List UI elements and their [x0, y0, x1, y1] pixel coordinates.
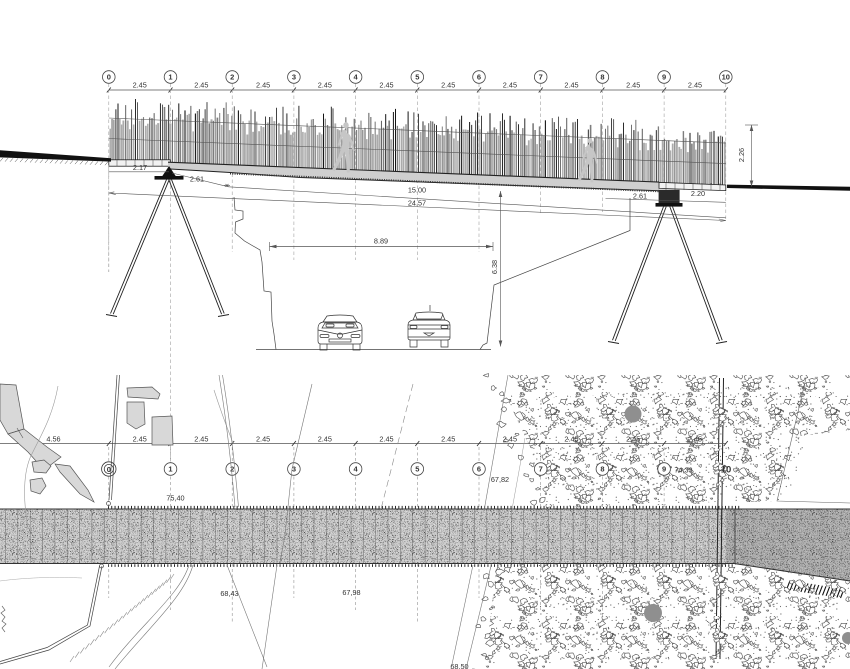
svg-text:4: 4 — [354, 73, 359, 82]
svg-text:5: 5 — [415, 73, 419, 82]
svg-text:2.45: 2.45 — [626, 435, 640, 444]
svg-text:9: 9 — [662, 465, 666, 474]
svg-text:75,40: 75,40 — [166, 494, 184, 503]
svg-text:15.00: 15.00 — [408, 186, 426, 195]
svg-text:6: 6 — [477, 465, 481, 474]
svg-text:8: 8 — [600, 465, 604, 474]
svg-text:2.45: 2.45 — [503, 81, 517, 90]
svg-text:6: 6 — [477, 73, 481, 82]
svg-text:2.45: 2.45 — [133, 81, 147, 90]
svg-text:2.45: 2.45 — [688, 81, 702, 90]
svg-text:68,43: 68,43 — [220, 589, 238, 598]
svg-text:6.38: 6.38 — [490, 260, 499, 274]
svg-text:2.45: 2.45 — [256, 435, 270, 444]
svg-text:1: 1 — [168, 465, 172, 474]
svg-text:2.45: 2.45 — [379, 81, 393, 90]
svg-text:7: 7 — [539, 73, 543, 82]
svg-text:2.61: 2.61 — [190, 175, 204, 184]
svg-text:2.45: 2.45 — [564, 81, 578, 90]
svg-text:2.45: 2.45 — [564, 435, 578, 444]
svg-text:2: 2 — [230, 465, 234, 474]
svg-text:2.45: 2.45 — [441, 81, 455, 90]
svg-text:67,98: 67,98 — [342, 588, 360, 597]
svg-text:2.45: 2.45 — [626, 81, 640, 90]
svg-text:2.45: 2.45 — [194, 81, 208, 90]
svg-text:2.45: 2.45 — [318, 81, 332, 90]
svg-text:2.45: 2.45 — [318, 435, 332, 444]
svg-text:4.56: 4.56 — [46, 435, 60, 444]
svg-text:1: 1 — [168, 73, 172, 82]
svg-text:2: 2 — [230, 73, 234, 82]
svg-text:2.45: 2.45 — [503, 435, 517, 444]
svg-text:10: 10 — [722, 73, 730, 82]
svg-text:2.61: 2.61 — [633, 192, 647, 201]
svg-text:2.26: 2.26 — [737, 148, 746, 162]
svg-text:2.45: 2.45 — [441, 435, 455, 444]
svg-text:9: 9 — [662, 73, 666, 82]
svg-text:2.45: 2.45 — [688, 435, 702, 444]
svg-text:2.20: 2.20 — [691, 189, 705, 198]
svg-text:68,50: 68,50 — [450, 662, 468, 669]
svg-text:67,82: 67,82 — [491, 475, 509, 484]
svg-text:5: 5 — [415, 465, 419, 474]
svg-text:2.17: 2.17 — [133, 163, 147, 172]
svg-text:8.89: 8.89 — [374, 237, 388, 246]
svg-text:8: 8 — [600, 73, 604, 82]
svg-text:2.45: 2.45 — [256, 81, 270, 90]
svg-text:24.57: 24.57 — [408, 199, 426, 208]
svg-text:7: 7 — [539, 465, 543, 474]
svg-text:0: 0 — [107, 73, 111, 82]
svg-text:0: 0 — [107, 465, 111, 474]
svg-text:3: 3 — [292, 73, 296, 82]
svg-text:2.45: 2.45 — [194, 435, 208, 444]
svg-text:74,33: 74,33 — [674, 466, 692, 475]
svg-text:2.45: 2.45 — [379, 435, 393, 444]
svg-text:2.45: 2.45 — [133, 435, 147, 444]
svg-text:10: 10 — [721, 465, 732, 476]
